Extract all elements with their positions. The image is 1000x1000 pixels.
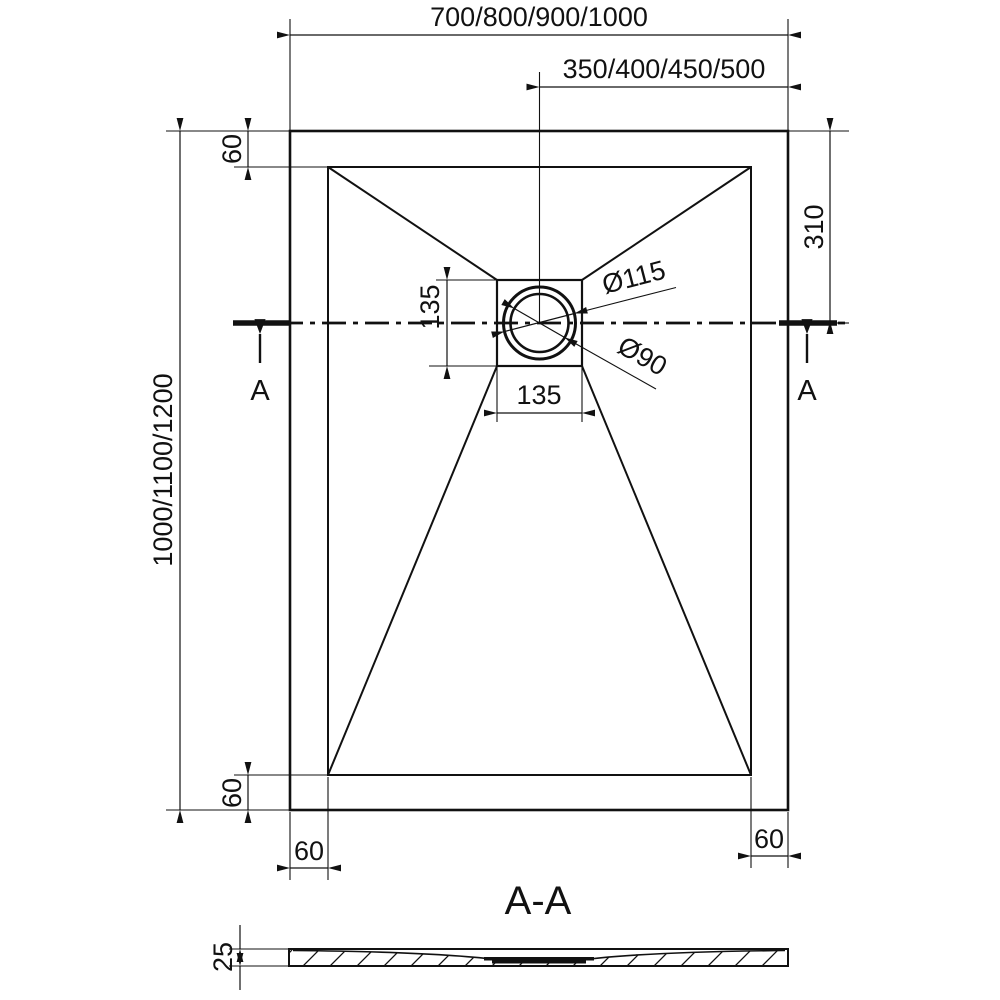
dimension-drain-from-top: 310 [788,131,849,321]
dimension-thickness: 25 [208,925,291,990]
slope-line-bottom-left [328,366,497,775]
dimension-drain-outer-diameter: Ø115 [505,255,676,332]
slope-line-bottom-right [582,366,751,775]
dimension-text-rim-bottom: 60 [217,778,247,808]
section-drain-flange-right [586,957,594,961]
slope-line-top-left [328,167,497,280]
dimension-text-rim-top: 60 [217,134,247,164]
dimension-text-drain-inner-diameter: Ø90 [613,331,672,382]
section-marker-right-label: A [797,375,817,407]
dimension-text-drain-from-right: 350/400/450/500 [563,54,766,84]
dimension-text-drain-box-height: 135 [415,284,445,329]
dimension-drain-box-width: 135 [497,366,582,422]
dimension-rim-bottom-left: 60 [290,777,328,880]
dimension-drain-inner-diameter: Ø90 [514,309,672,390]
dimension-text-thickness: 25 [208,942,238,972]
dimension-text-drain-box-width: 135 [516,380,561,410]
drawing-canvas: A A 700/800/900/1000 350/400/450/500 100… [0,0,1000,1000]
dimension-drain-from-right: 350/400/450/500 [540,54,789,87]
dimension-overall-length: 1000/1100/1200 [148,131,290,810]
shower-tray-technical-drawing: A A 700/800/900/1000 350/400/450/500 100… [0,0,1000,1000]
section-title: A-A [505,879,572,923]
dimension-rim-top: 60 [217,131,328,167]
plan-view: A A [233,72,849,810]
section-marker-left-label: A [250,375,270,407]
dimension-rim-bottom-right: 60 [751,777,788,868]
dimension-text-overall-width: 700/800/900/1000 [430,2,648,32]
section-view: A-A 25 [208,879,788,990]
section-drain-flange-left [484,957,492,961]
dimension-text-rim-bottom-right: 60 [754,824,784,854]
dimension-text-drain-from-top: 310 [799,204,829,249]
slope-line-top-right [582,167,751,280]
dimension-text-rim-bottom-left: 60 [294,836,324,866]
dimension-text-overall-length: 1000/1100/1200 [148,373,178,566]
dimension-rim-bottom: 60 [217,775,328,810]
section-drain-body [492,957,586,964]
